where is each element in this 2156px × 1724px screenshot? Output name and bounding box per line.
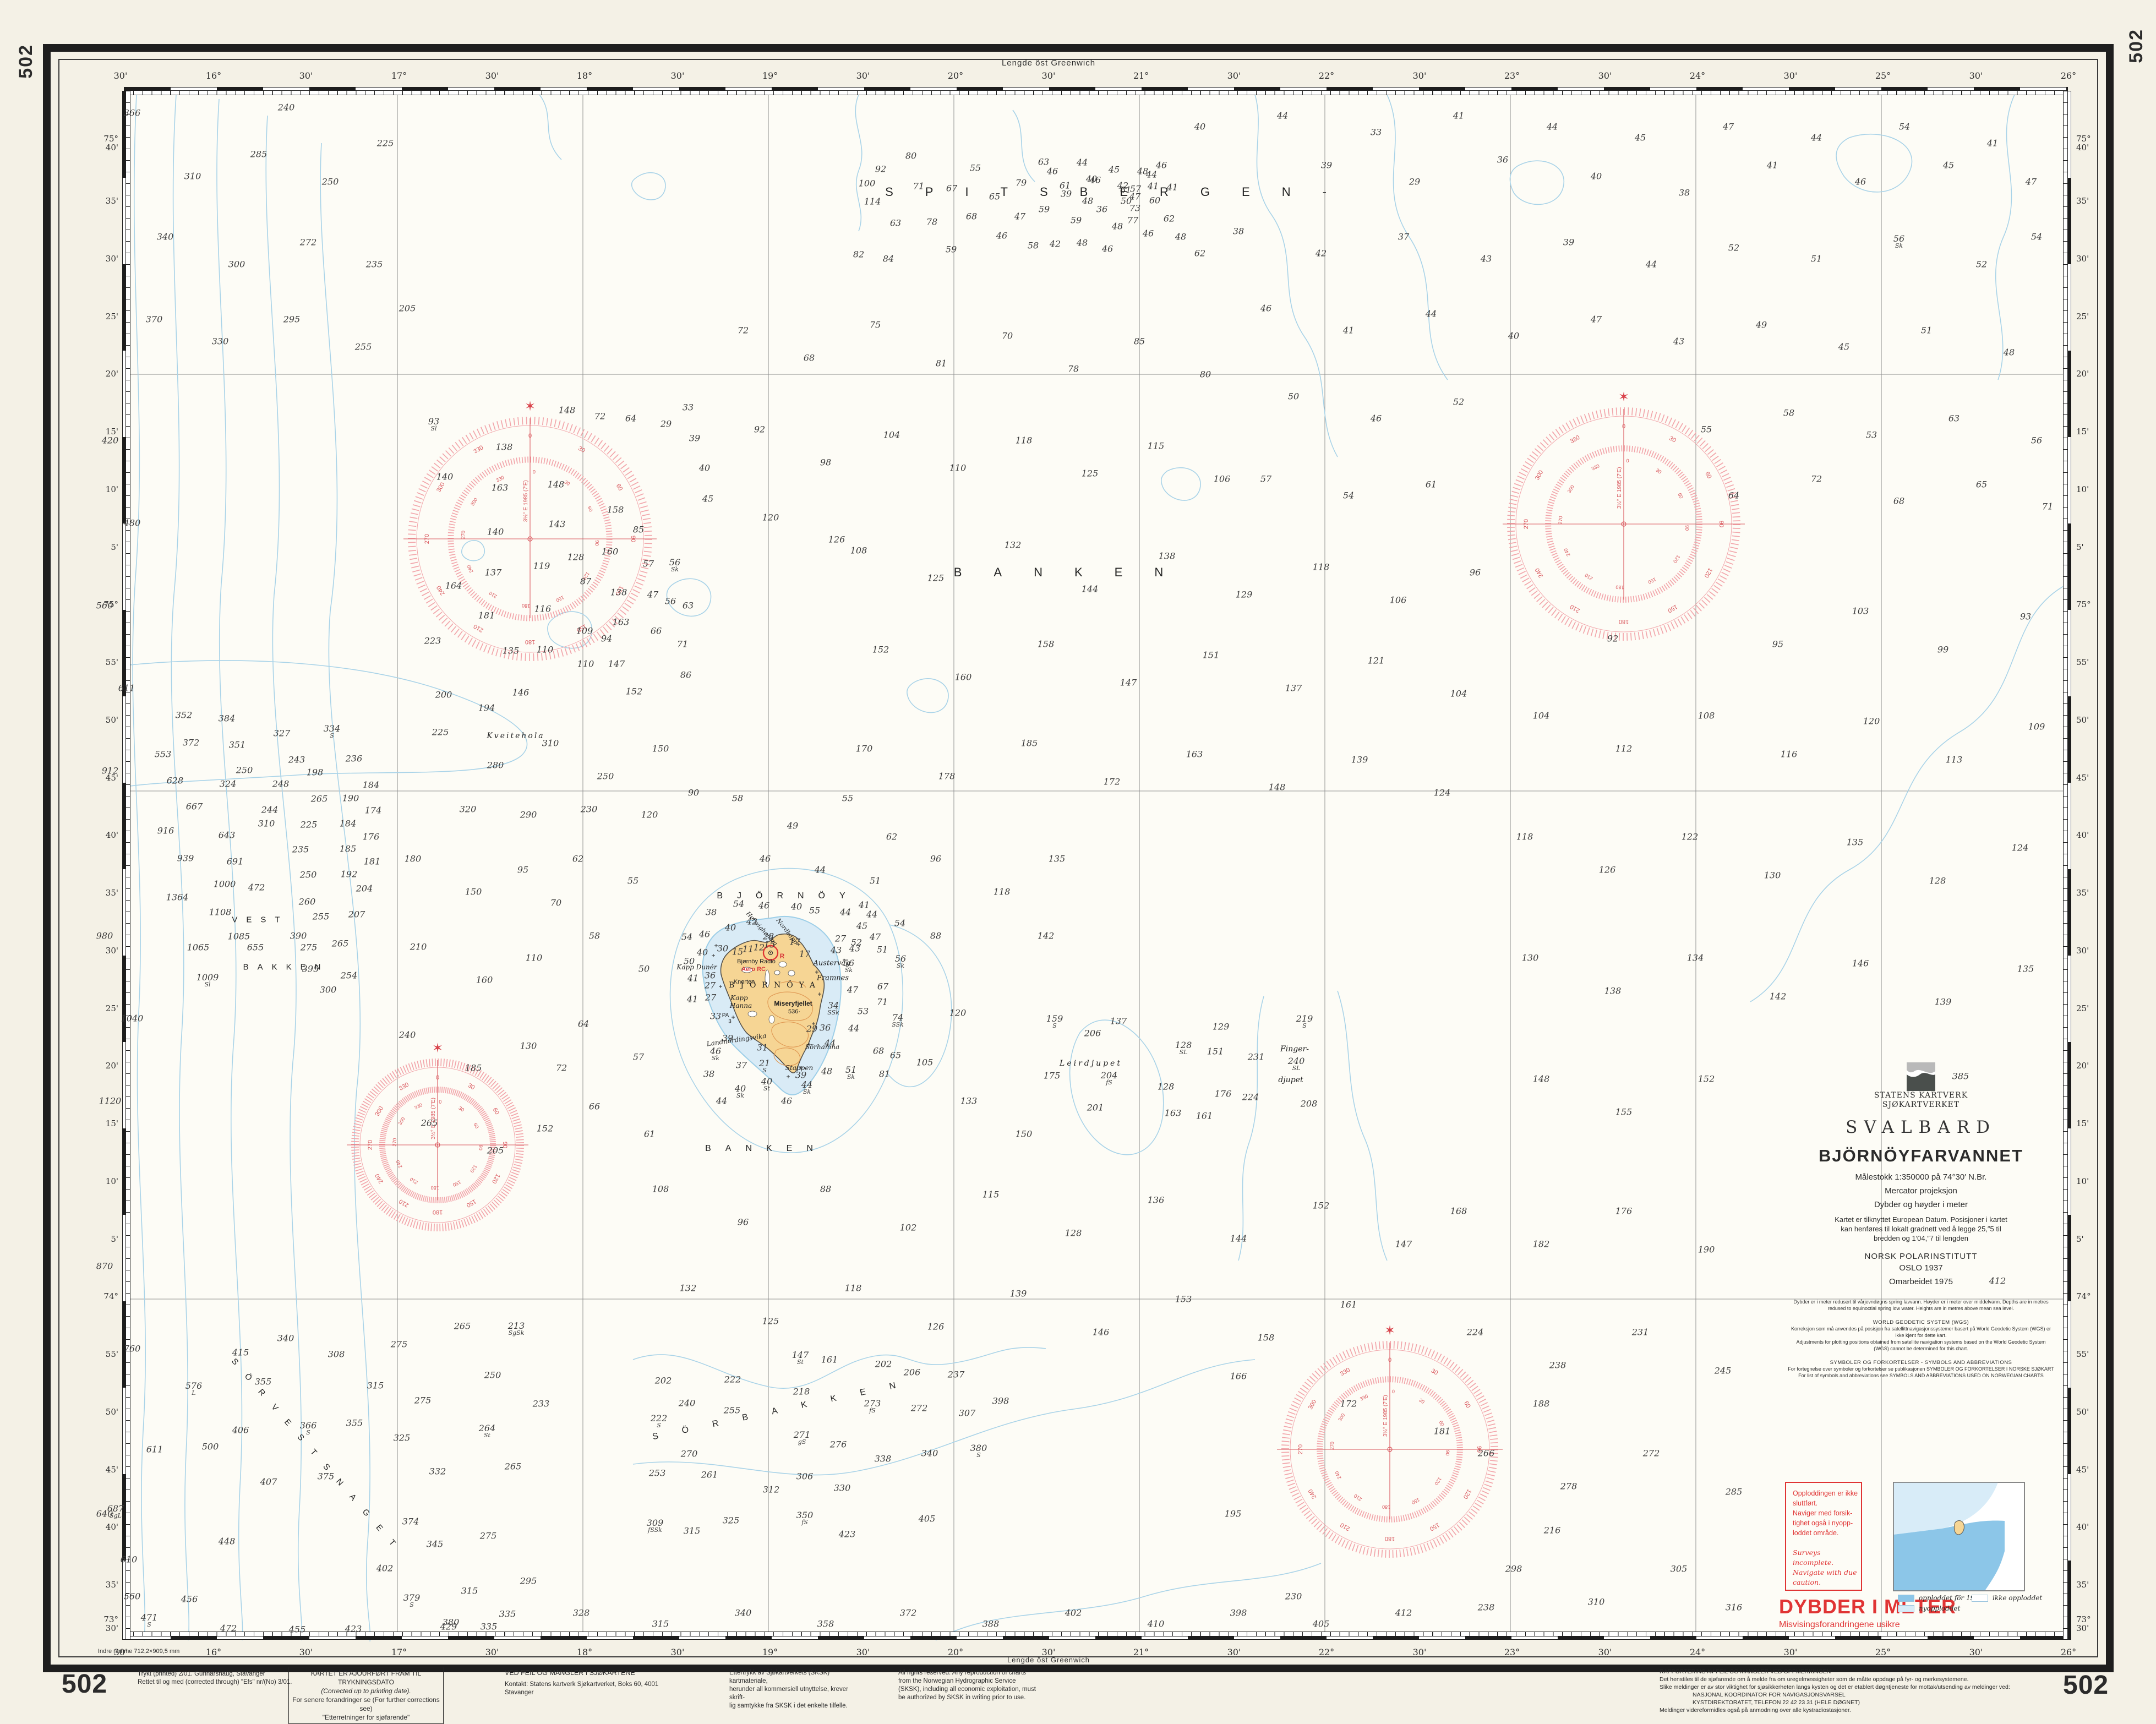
depth-sounding: 130 xyxy=(1764,872,1781,879)
depth-sounding: 1120 xyxy=(99,1098,122,1105)
depth-sounding: 235 xyxy=(366,261,383,268)
depth-sounding: 61 xyxy=(644,1131,655,1138)
depth-sounding: 86 xyxy=(680,672,691,679)
depth-sounding: 63 xyxy=(890,220,901,227)
latitude-label-right: 35' xyxy=(2076,1580,2115,1589)
latitude-label-right: 40' xyxy=(2076,1523,2115,1531)
depth-sounding: 370 xyxy=(146,316,163,323)
depth-sounding: 230 xyxy=(581,806,598,813)
depth-sounding: 448 xyxy=(219,1538,236,1545)
depth-sounding: 38 xyxy=(706,909,717,916)
depth-sounding: 275 xyxy=(414,1397,432,1404)
depth-sounding: 74SSk xyxy=(892,1014,904,1028)
latitude-label-left: 35' xyxy=(80,888,118,897)
depth-sounding: 38 xyxy=(703,1071,714,1078)
place-name: 3 xyxy=(728,1019,732,1025)
depth-sounding: 53 xyxy=(1866,432,1877,439)
depth-sounding: 225 xyxy=(301,821,318,828)
depth-sounding: 912 xyxy=(102,767,119,774)
depth-sounding: 309fSSk xyxy=(647,1519,664,1534)
depth-sounding: 47 xyxy=(870,934,881,941)
depth-sounding: 219S xyxy=(1296,1015,1313,1029)
longitude-label-bottom: 23° xyxy=(1504,1647,1520,1657)
latitude-label-right: 74° xyxy=(2076,1292,2115,1301)
depth-sounding: 55 xyxy=(809,907,820,914)
place-name: BJÖRNÖY xyxy=(717,891,859,901)
depth-sounding: 325 xyxy=(394,1434,411,1442)
top-longitude-caption: Lengde öst Greenwich xyxy=(1002,58,1095,68)
depth-sounding: 328 xyxy=(573,1610,590,1617)
projection-statement: Mercator projeksjon xyxy=(1786,1186,2056,1196)
errors-heading: VED FEIL OG MANGLER I SJØKARTENE xyxy=(505,1669,686,1677)
depth-sounding: 148 xyxy=(559,407,576,414)
latitude-label-left: 73° 30' xyxy=(80,1615,118,1633)
depth-sounding: 120 xyxy=(762,514,779,521)
depth-sounding: 205 xyxy=(487,1147,504,1154)
bottom-type-label: SL xyxy=(1175,1049,1192,1056)
depth-sounding: 128 xyxy=(1158,1083,1175,1090)
longitude-label-bottom: 25° xyxy=(1875,1647,1891,1657)
bottom-type-label: SSk xyxy=(827,1009,839,1016)
depth-sounding: 126 xyxy=(927,1323,945,1330)
depth-sounding: 687SgL xyxy=(107,1505,124,1519)
institute: NORSK POLARINSTITUTT xyxy=(1786,1252,2056,1261)
depth-sounding: 231 xyxy=(1248,1054,1265,1061)
latitude-label-left: 50' xyxy=(80,1407,118,1416)
depth-sounding: 46 xyxy=(760,855,771,863)
depth-sounding: 33 xyxy=(683,404,694,411)
place-name: Kveitehola xyxy=(487,732,544,740)
latitude-label-left: 35' xyxy=(80,197,118,205)
latitude-label-left: 30' xyxy=(80,946,118,955)
depth-sounding: 240 xyxy=(399,1032,416,1039)
depth-sounding: 116 xyxy=(1781,751,1798,758)
legend-swatch-resurveyed xyxy=(1898,1605,1914,1612)
datum-line-3: bredden og 1′04,″7 til lengden xyxy=(1786,1234,2056,1243)
depth-sounding: 139 xyxy=(1935,999,1952,1006)
longitude-label-bottom: 17° xyxy=(391,1647,407,1657)
depth-sounding: 75 xyxy=(870,321,881,329)
depth-sounding: 41 xyxy=(1767,162,1778,169)
longitude-label-top: 30' xyxy=(1784,70,1798,81)
depth-sounding: 402 xyxy=(1065,1610,1082,1617)
depth-sounding: 119 xyxy=(533,563,550,570)
depth-sounding: 49 xyxy=(787,822,798,830)
bottom-type-label: S xyxy=(403,1601,421,1608)
place-name: BANKEN xyxy=(954,565,1195,580)
depth-sounding: 158 xyxy=(1038,641,1055,648)
place-name: Stappen xyxy=(785,1064,813,1072)
depth-sounding: 250 xyxy=(300,871,317,879)
depth-sounding: 88 xyxy=(820,1186,831,1193)
depth-sounding: 58 xyxy=(732,795,743,802)
depth-sounding: 185 xyxy=(465,1065,482,1072)
depth-sounding: 272 xyxy=(300,239,317,246)
depth-sounding: 272 xyxy=(1643,1450,1660,1457)
depth-sounding: 190 xyxy=(1698,1246,1715,1253)
depth-sounding: 330 xyxy=(834,1485,851,1492)
printed-line: Trykt (printed) 2/01. Gunnarshaug, Stava… xyxy=(138,1670,292,1678)
latitude-label-left: 55' xyxy=(80,658,118,667)
latitude-label-left: 20' xyxy=(80,369,118,378)
depth-sounding: 264St xyxy=(479,1425,496,1439)
depth-sounding: 128SL xyxy=(1175,1041,1192,1056)
depth-sounding: 261 xyxy=(701,1471,718,1479)
depth-sounding: 44Sk xyxy=(801,1081,812,1095)
depth-sounding: 643 xyxy=(219,832,236,839)
bottom-type-label: Sk xyxy=(845,1073,856,1081)
depth-sounding: 43 xyxy=(1673,338,1684,345)
depth-sounding: 610 xyxy=(121,1556,138,1563)
depth-sounding: 398 xyxy=(992,1398,1009,1405)
depth-sounding: 138 xyxy=(496,444,513,451)
depth-sounding: 78 xyxy=(926,219,937,226)
depth-sounding: 46Sk xyxy=(710,1048,721,1062)
bottom-type-label: Sk xyxy=(895,962,906,969)
depth-sounding: 115 xyxy=(1148,443,1165,450)
depth-sounding: 691 xyxy=(227,858,244,865)
wgs-line-4: (WGS) cannot be determined for this char… xyxy=(1786,1345,2056,1352)
place-name: BANKEN xyxy=(705,1144,827,1154)
depth-sounding: 327 xyxy=(274,730,291,737)
depth-sounding: 1065 xyxy=(187,944,210,951)
depth-sounding: 278 xyxy=(1560,1483,1578,1490)
warning-no-1: Opploddingen er ikke xyxy=(1793,1488,1861,1498)
latitude-label-right: 50' xyxy=(2076,1407,2115,1416)
depth-sounding: 44 xyxy=(1077,159,1088,166)
depth-sounding: 310 xyxy=(258,820,275,827)
inner-frame-dimension-note: Indre ramme 712,2×909,5 mm xyxy=(98,1648,179,1655)
depth-sounding: 250 xyxy=(322,178,339,186)
longitude-label-top: 30' xyxy=(1227,70,1241,81)
place-name: Hanna xyxy=(730,1002,752,1010)
depth-sounding: 45 xyxy=(856,923,867,930)
depth-sounding: 280 xyxy=(487,762,504,769)
depth-sounding: 128 xyxy=(1065,1230,1082,1237)
depth-sounding: 46 xyxy=(1371,415,1382,422)
latitude-label-left: 74° xyxy=(80,1292,118,1301)
depth-sounding: 270 xyxy=(681,1450,698,1458)
warning-no-3: Naviger med forsik- xyxy=(1793,1508,1861,1518)
depth-sounding: 78 xyxy=(1068,365,1079,373)
depth-sounding: 222S xyxy=(651,1415,668,1429)
depth-sounding: 298 xyxy=(1505,1565,1522,1573)
depth-sounding: 72 xyxy=(738,327,749,334)
depth-sounding: 310 xyxy=(542,740,559,747)
depth-sounding: 64 xyxy=(625,415,636,422)
errors-contact: Kontakt: Statens kartverk Sjøkartverket,… xyxy=(505,1681,686,1697)
depth-sounding: 456 xyxy=(181,1596,198,1603)
latitude-label-right: 50' xyxy=(2076,716,2115,724)
depth-sounding: 204 xyxy=(356,885,373,892)
depth-sounding: 44 xyxy=(848,1025,859,1032)
depth-sounding: 61 xyxy=(1426,481,1437,488)
depth-sounding: 240SL xyxy=(1288,1057,1305,1072)
depth-sounding: 44 xyxy=(840,909,851,916)
depth-sounding: 106 xyxy=(1214,476,1231,483)
depth-sounding: 174 xyxy=(365,807,382,814)
depth-sounding: 58 xyxy=(1783,410,1794,417)
depth-sounding: 71 xyxy=(677,641,688,648)
latitude-label-left: 30' xyxy=(80,254,118,263)
depth-sounding: 271gS xyxy=(794,1431,811,1445)
longitude-label-top: 30' xyxy=(485,70,499,81)
depth-sounding: 48 xyxy=(821,1068,832,1075)
depth-sounding: 59 xyxy=(1039,206,1050,213)
depth-sounding: 870 xyxy=(96,1263,113,1270)
symbols-line-2: For list of symbols and abbreviations se… xyxy=(1786,1372,2056,1379)
bottom-type-label: S xyxy=(324,732,341,739)
depth-sounding: 114 xyxy=(864,198,881,205)
depth-sounding: 125 xyxy=(1082,470,1099,477)
datum-line-2: kan henføres til lokalt gradnett ved å l… xyxy=(1786,1224,2056,1234)
depth-sounding: 150 xyxy=(465,888,482,896)
depth-sounding: 92 xyxy=(754,426,765,433)
depth-sounding: 471S xyxy=(141,1614,158,1628)
depth-sounding: 56 xyxy=(665,598,676,605)
region-title: SVALBARD xyxy=(1786,1117,2056,1137)
latitude-label-right: 35' xyxy=(2076,197,2115,205)
bottom-type-label: S xyxy=(759,1067,770,1074)
depth-sounding: 143 xyxy=(549,521,566,528)
latitude-label-right: 55' xyxy=(2076,658,2115,667)
depth-sounding: 135 xyxy=(2017,965,2034,973)
depth-sounding: 152 xyxy=(626,688,643,695)
depth-sounding: 39 xyxy=(1563,239,1574,246)
depth-sounding: 105 xyxy=(916,1059,934,1066)
depth-sounding: 39 xyxy=(689,435,700,442)
depth-sounding: 42 xyxy=(1050,241,1061,248)
chart-number-top-left: 502 xyxy=(15,44,37,79)
longitude-label-bottom: 20° xyxy=(948,1647,963,1657)
depth-sounding: 140 xyxy=(436,473,454,481)
rapp-heading: RAPPORTERING AV FEIL OG MANGLER VED OPPM… xyxy=(1660,1668,2034,1676)
depth-sounding: 152 xyxy=(872,646,889,653)
units-statement: Dybder og høyder i meter xyxy=(1786,1200,2056,1209)
depth-sounding: 560 xyxy=(96,602,113,609)
depth-sounding: 160 xyxy=(476,976,493,984)
depth-sounding: 402 xyxy=(376,1565,394,1572)
depth-sounding: 315 xyxy=(367,1382,384,1389)
depth-sounding: 207 xyxy=(348,911,365,918)
bottom-type-label: fS xyxy=(796,1519,814,1526)
bottom-type-label: S xyxy=(1046,1022,1063,1029)
latitude-label-left: 40' xyxy=(80,1523,118,1531)
depth-sounding: 46 xyxy=(1102,245,1113,253)
depth-sounding: 68 xyxy=(966,213,977,220)
copyright-en-block: All rights reserved. Any reproduction of… xyxy=(898,1669,1036,1702)
depth-sounding: 133 xyxy=(960,1098,978,1105)
bottom-type-label: SL xyxy=(1288,1065,1305,1072)
errors-contact-block: VED FEIL OG MANGLER I SJØKARTENE Kontakt… xyxy=(505,1669,686,1697)
depth-sounding: 64 xyxy=(1728,492,1739,499)
depth-sounding: 175 xyxy=(1044,1072,1061,1079)
depth-sounding: 104 xyxy=(1450,690,1467,697)
depth-sounding: 108 xyxy=(1698,712,1715,719)
depth-sounding: 410 xyxy=(1148,1621,1165,1628)
depth-sounding: 108 xyxy=(850,547,867,554)
latitude-label-right: 25' xyxy=(2076,1004,2115,1013)
depth-sounding: 134 xyxy=(1687,954,1704,962)
depth-sounding: 63 xyxy=(683,602,694,609)
depth-sounding: 230 xyxy=(1285,1593,1302,1600)
depth-sounding: 36 xyxy=(1096,206,1107,213)
chart-number-top-right: 502 xyxy=(2126,29,2147,63)
depth-sounding: 916 xyxy=(157,827,174,834)
depth-sounding: 144 xyxy=(1230,1235,1247,1242)
depth-sounding: 380S xyxy=(970,1444,987,1459)
depth-sounding: 166 xyxy=(1230,1373,1247,1380)
depth-sounding: 238 xyxy=(1549,1362,1566,1369)
depth-sounding: 146 xyxy=(1852,960,1869,967)
depth-sounding: 255 xyxy=(355,343,372,351)
longitude-label-bottom: 30' xyxy=(299,1647,313,1657)
corrected-line: Rettet til og med (corrected through) "E… xyxy=(138,1678,292,1687)
latitude-label-right: 5' xyxy=(2076,543,2115,552)
place-name: PA xyxy=(722,1013,729,1019)
depth-sounding: 44 xyxy=(1547,123,1558,130)
depth-sounding: 1040 xyxy=(121,1015,144,1022)
depth-sounding: 54 xyxy=(681,934,692,941)
depth-sounding: 46 xyxy=(1156,162,1167,169)
depth-sounding: 103 xyxy=(1852,608,1869,615)
depth-sounding: 73 xyxy=(1129,205,1140,212)
depth-sounding: 306 xyxy=(796,1473,814,1480)
depth-sounding: 147 xyxy=(608,661,625,668)
depth-sounding: 45 xyxy=(1838,343,1849,351)
depth-sounding: 151 xyxy=(1203,652,1220,659)
depth-sounding: 152 xyxy=(537,1125,554,1132)
depth-sounding: 184 xyxy=(340,820,357,827)
depth-sounding: 137 xyxy=(485,569,502,576)
rights-line-4: be authorized by SKSK in writing prior t… xyxy=(898,1694,1036,1702)
depth-sounding: 37 xyxy=(1398,233,1409,241)
rapp-line-1: Det henstiles til de sjøfarende om å mel… xyxy=(1660,1676,2034,1683)
depth-sounding: 34SSk xyxy=(827,1002,839,1016)
depth-sounding: 275 xyxy=(480,1532,497,1540)
depth-sounding: 48 xyxy=(1077,239,1088,247)
depth-sounding: 405 xyxy=(1313,1621,1330,1628)
depth-sounding: 92 xyxy=(875,166,886,173)
depth-sounding: 161 xyxy=(1196,1112,1213,1120)
place-name: Sörhamna xyxy=(805,1043,839,1051)
revised-year: Omarbeidet 1975 xyxy=(1786,1277,2056,1286)
depth-sounding: 335 xyxy=(481,1623,498,1630)
magnetic-variation-note: Misvisingsforandringene usikre xyxy=(1779,1620,1900,1630)
latitude-label-right: 15' xyxy=(2076,427,2115,436)
depth-sounding: 53 xyxy=(858,1008,869,1015)
bottom-type-label: St xyxy=(792,1359,809,1366)
etter-line-1: Ettertrykk av Sjøkartverkets (SKSK) kart… xyxy=(729,1669,856,1685)
depth-sounding: 46 xyxy=(1047,168,1058,175)
depth-sounding: 106 xyxy=(1390,597,1407,604)
depth-sounding: 181 xyxy=(364,858,381,865)
depth-sounding: 159S xyxy=(1046,1015,1063,1029)
depth-sounding: 308 xyxy=(328,1351,345,1358)
depth-sounding: 47 xyxy=(847,986,858,994)
depth-sounding: 113 xyxy=(1946,756,1963,763)
depth-sounding: 198 xyxy=(307,769,324,776)
depth-sounding: 40 xyxy=(1194,123,1205,130)
depth-sounding: 95 xyxy=(1772,641,1783,648)
depth-sounding: 225 xyxy=(432,729,449,736)
depth-sounding: 51Sk xyxy=(845,1066,856,1081)
depth-sounding: 94 xyxy=(601,635,612,642)
latitude-label-right: 30' xyxy=(2076,254,2115,263)
depth-sounding: 423 xyxy=(839,1531,856,1538)
depth-sounding: 178 xyxy=(938,773,956,780)
depth-sounding: 253 xyxy=(649,1470,666,1477)
depth-sounding: 12 xyxy=(754,944,765,951)
depth-sounding: 138 xyxy=(610,589,627,596)
latitude-label-left: 45' xyxy=(80,1465,118,1474)
depth-sounding: 31 xyxy=(757,1044,768,1051)
depth-sounding: 45 xyxy=(1109,166,1120,173)
depth-sounding: 611 xyxy=(118,685,135,692)
depth-sounding: 340 xyxy=(921,1450,938,1457)
depth-sounding: 40 xyxy=(1591,173,1602,180)
depth-sounding: 125 xyxy=(927,575,945,582)
depth-sounding: 384 xyxy=(219,715,236,722)
depth-sounding: 57 xyxy=(1260,476,1271,483)
depth-sounding: 44 xyxy=(1277,112,1288,119)
depth-sounding: 81 xyxy=(936,360,947,367)
depth-sounding: 379S xyxy=(403,1594,421,1608)
depth-sounding: 148 xyxy=(1269,784,1286,791)
longitude-label-top: 30' xyxy=(1969,70,1983,81)
depth-sounding: 240 xyxy=(278,104,295,111)
depth-sounding: 184 xyxy=(363,782,380,789)
depth-sounding: 70 xyxy=(550,899,561,907)
depth-sounding: 77 xyxy=(1127,217,1138,224)
latitude-label-right: 40' xyxy=(2076,831,2115,839)
depth-sounding: 137 xyxy=(1110,1018,1127,1025)
depth-sounding: 480 xyxy=(124,520,141,527)
depth-sounding: 139 xyxy=(1010,1290,1027,1297)
place-name: Framnes xyxy=(817,974,849,983)
depth-sounding: 45 xyxy=(702,495,713,503)
depth-sounding: 17 xyxy=(799,951,810,958)
depth-sounding: 96 xyxy=(1470,569,1481,576)
bottom-type-label: gS xyxy=(794,1438,811,1445)
longitude-label-top: 30' xyxy=(114,70,128,81)
latitude-label-right: 5' xyxy=(2076,1235,2115,1243)
depth-sounding: 276 xyxy=(830,1441,847,1448)
datum-line-1: Kartet er tilknyttet European Datum. Pos… xyxy=(1786,1215,2056,1224)
etter-line-2: herunder all kommersiell utnyttelse, kre… xyxy=(729,1685,856,1702)
depth-sounding: 195 xyxy=(1225,1510,1242,1518)
depth-sounding: 312 xyxy=(763,1486,780,1493)
depth-sounding: 132 xyxy=(1005,542,1022,549)
depth-sounding: 47 xyxy=(647,591,658,598)
latitude-label-right: 10' xyxy=(2076,1177,2115,1186)
depth-sounding: 320 xyxy=(460,806,477,813)
depth-sounding: 65 xyxy=(1976,481,1987,488)
bottom-type-label: St xyxy=(761,1085,772,1092)
bottom-type-label: Sk xyxy=(1893,242,1904,249)
depth-sounding: 213SgSk xyxy=(508,1322,525,1336)
depth-sounding: 93 xyxy=(2020,613,2031,620)
latitude-label-right: 30' xyxy=(2076,946,2115,955)
depth-sounding: 56Sk xyxy=(669,559,680,573)
depth-sounding: 206 xyxy=(904,1369,921,1376)
depth-sounding: 160 xyxy=(955,674,972,681)
depth-sounding: 146 xyxy=(512,689,530,696)
depth-sounding: 58 xyxy=(1028,242,1039,249)
depth-sounding: 68 xyxy=(804,354,815,362)
place-name: VEST xyxy=(232,915,288,925)
place-name: Kapp Dunér xyxy=(676,963,717,971)
